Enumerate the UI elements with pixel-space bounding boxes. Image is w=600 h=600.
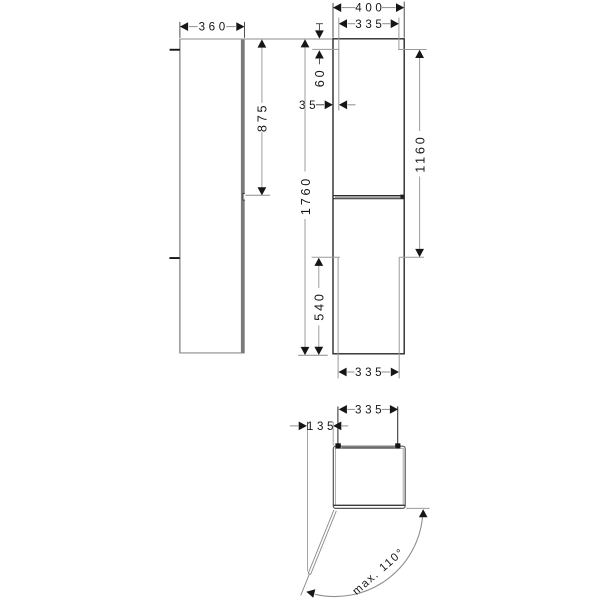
svg-text:1 3 5: 1 3 5 [307, 420, 334, 433]
svg-text:875: 875 [256, 103, 270, 132]
svg-text:max. 110°: max. 110° [351, 546, 408, 597]
svg-text:60: 60 [313, 68, 327, 88]
svg-text:1160: 1160 [413, 134, 427, 172]
svg-text:540: 540 [313, 291, 327, 320]
svg-text:3 3 5: 3 3 5 [355, 366, 382, 379]
svg-text:3 5: 3 5 [299, 99, 316, 112]
svg-text:3 3 5: 3 3 5 [355, 18, 382, 31]
svg-text:4 0 0: 4 0 0 [355, 2, 382, 15]
svg-text:1760: 1760 [299, 176, 313, 215]
svg-text:3 3 5: 3 3 5 [355, 404, 382, 417]
svg-text:3 6 0: 3 6 0 [199, 21, 226, 34]
